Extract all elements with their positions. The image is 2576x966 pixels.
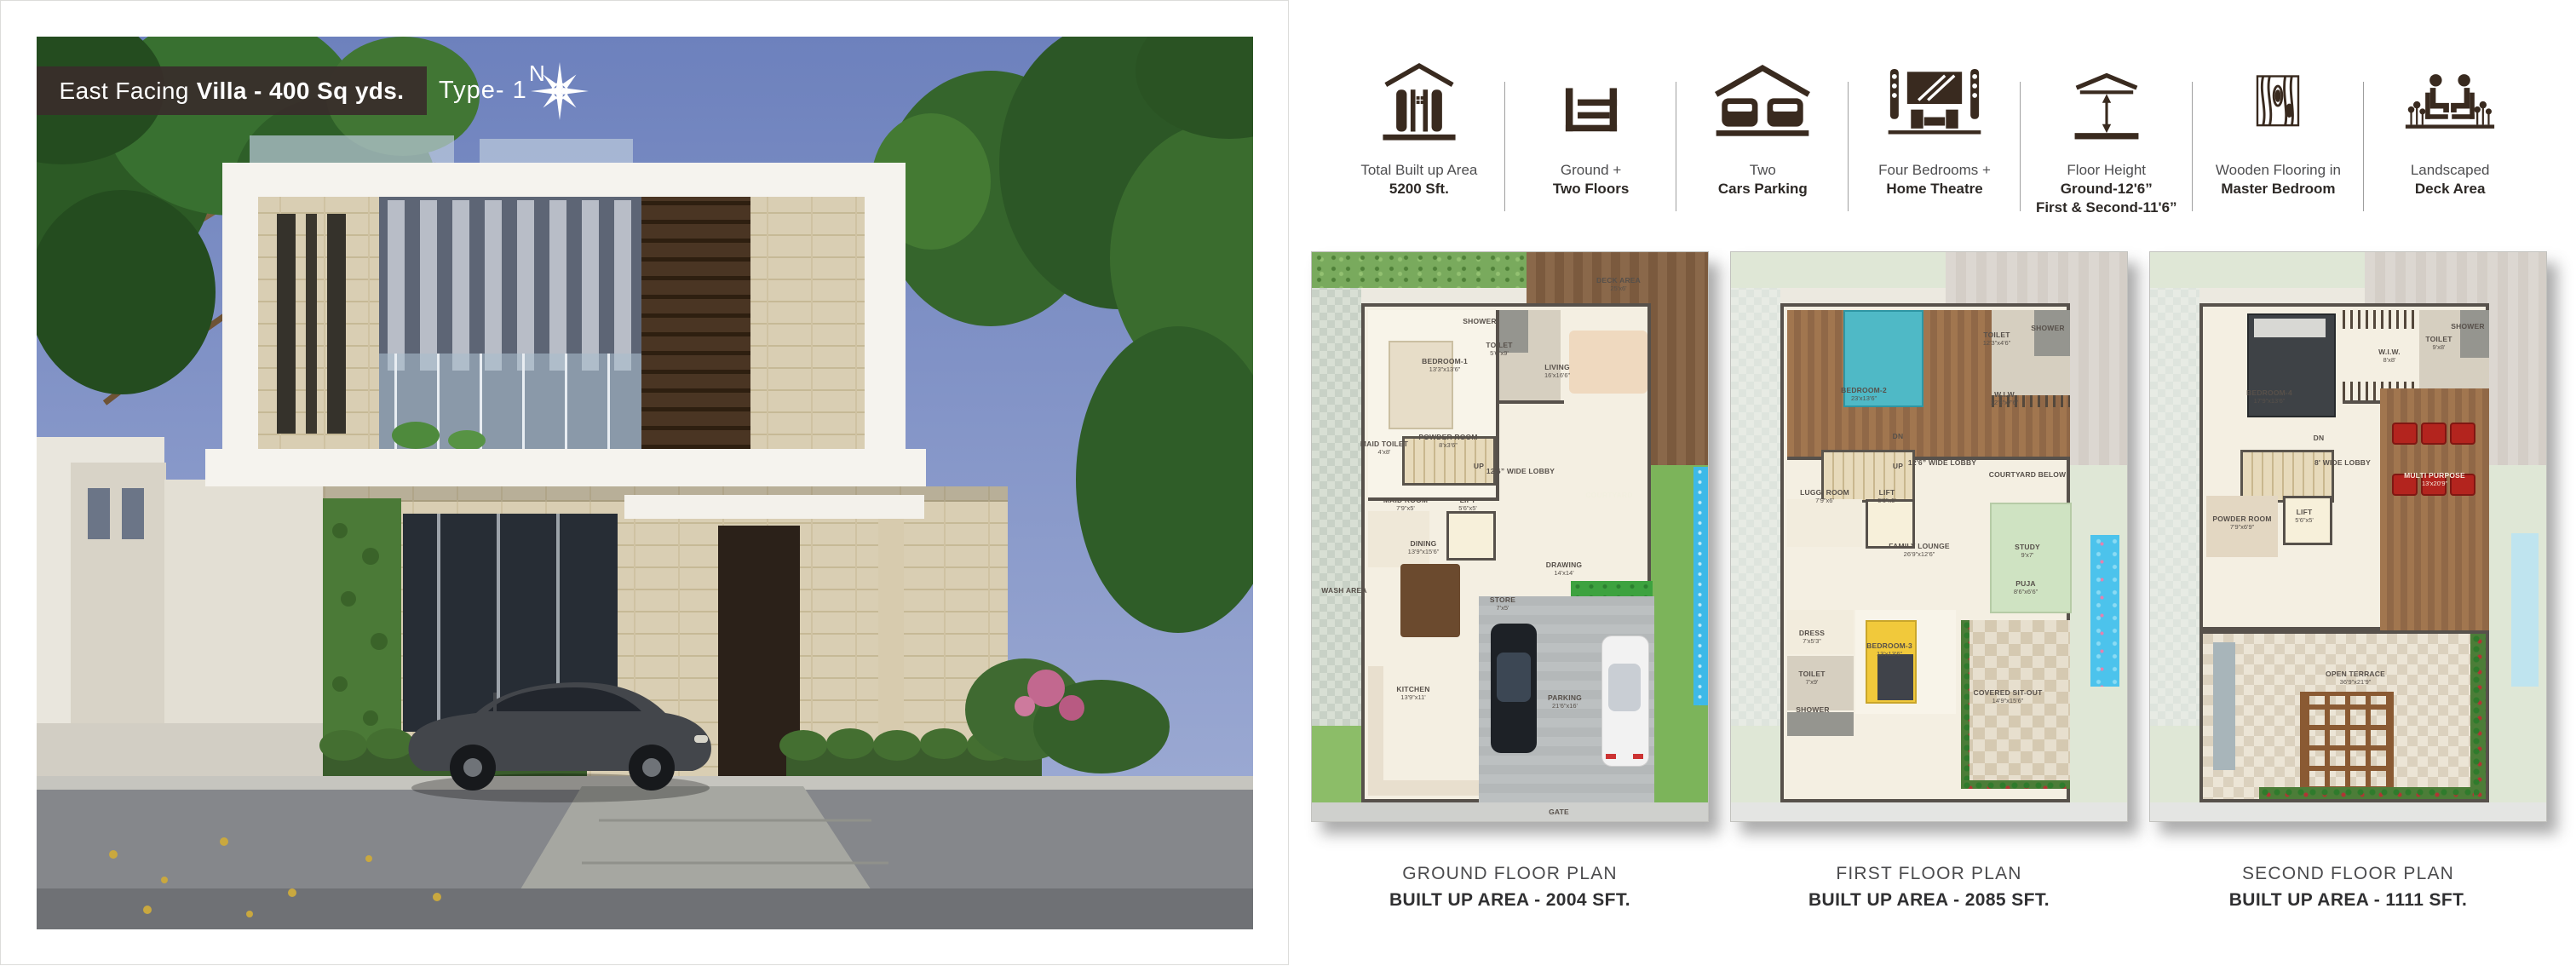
feature-line1: Landscaped <box>2364 161 2536 180</box>
plan-title: SECOND FLOOR PLAN <box>2149 864 2547 884</box>
feature-line2: Home Theatre <box>1849 180 2021 198</box>
home-theatre-icon <box>1849 48 2021 152</box>
badge-text: East FacingVilla - 400 Sq yds. <box>60 78 405 105</box>
plan-area: BUILT UP AREA - 1111 SFT. <box>2149 890 2547 911</box>
floors-icon <box>1505 48 1677 152</box>
badge-bold: Villa - 400 Sq yds. <box>197 78 405 104</box>
ground-floor-plan: DECK AREA25'x6' BEDROOM-113'3”x13'6” SHO… <box>1311 251 1709 822</box>
feature-floor-height: Floor HeightGround-12'6”First & Second-1… <box>2021 48 2193 220</box>
feature-strip: Total Built up Area5200 Sft. Ground +Two… <box>1333 48 2536 220</box>
feature-line1: Wooden Flooring in <box>2193 161 2365 180</box>
feature-line1: Total Built up Area <box>1333 161 1505 180</box>
feature-floors: Ground +Two Floors <box>1505 48 1677 220</box>
feature-line3: First & Second-11'6” <box>2021 198 2193 217</box>
feature-line1: Four Bedrooms + <box>1849 161 2021 180</box>
villa-photo-art <box>37 37 1253 929</box>
cars-parking-icon <box>1676 48 1849 152</box>
wooden-flooring-icon <box>2193 48 2365 152</box>
ground-floor-caption: GROUND FLOOR PLAN BUILT UP AREA - 2004 S… <box>1311 864 1709 911</box>
feature-cars-parking: TwoCars Parking <box>1676 48 1849 220</box>
type-label: Type- 1 <box>439 66 527 115</box>
feature-line2: 5200 Sft. <box>1333 180 1505 198</box>
feature-line1: Ground + <box>1505 161 1677 180</box>
first-floor-plan: BEDROOM-223'x13'6” TOILET12'3”x4'6” SHOW… <box>1730 251 2128 822</box>
photo-title-badge: East FacingVilla - 400 Sq yds. <box>37 66 427 115</box>
compass-rose-icon <box>529 60 590 122</box>
second-floor-caption: SECOND FLOOR PLAN BUILT UP AREA - 1111 S… <box>2149 864 2547 911</box>
deck-area-icon <box>2364 48 2536 152</box>
first-floor-caption: FIRST FLOOR PLAN BUILT UP AREA - 2085 SF… <box>1730 864 2128 911</box>
plan-title: GROUND FLOOR PLAN <box>1311 864 1709 884</box>
feature-built-up-area: Total Built up Area5200 Sft. <box>1333 48 1505 220</box>
built-up-area-icon <box>1333 48 1505 152</box>
badge-prefix: East Facing <box>60 78 189 104</box>
feature-line2: Deck Area <box>2364 180 2536 198</box>
feature-line1: Two <box>1676 161 1849 180</box>
villa-photo: East FacingVilla - 400 Sq yds. Type- 1 <box>37 37 1253 929</box>
feature-line2: Cars Parking <box>1676 180 1849 198</box>
feature-line1: Floor Height <box>2021 161 2193 180</box>
feature-line2: Master Bedroom <box>2193 180 2365 198</box>
floor-height-icon <box>2021 48 2193 152</box>
second-floor-plan: BEDROOM-417'9”x13'6” W.I.W.8'x8' TOILET9… <box>2149 251 2547 822</box>
compass: N <box>529 60 545 87</box>
feature-line2: Two Floors <box>1505 180 1677 198</box>
feature-line2: Ground-12'6” <box>2021 180 2193 198</box>
feature-home-theatre: Four Bedrooms +Home Theatre <box>1849 48 2021 220</box>
plan-title: FIRST FLOOR PLAN <box>1730 864 2128 884</box>
plan-area: BUILT UP AREA - 2004 SFT. <box>1311 890 1709 911</box>
feature-wooden-flooring: Wooden Flooring inMaster Bedroom <box>2193 48 2365 220</box>
feature-deck-area: LandscapedDeck Area <box>2364 48 2536 220</box>
photo-card: East FacingVilla - 400 Sq yds. Type- 1 <box>0 0 1289 965</box>
plan-area: BUILT UP AREA - 2085 SFT. <box>1730 890 2128 911</box>
